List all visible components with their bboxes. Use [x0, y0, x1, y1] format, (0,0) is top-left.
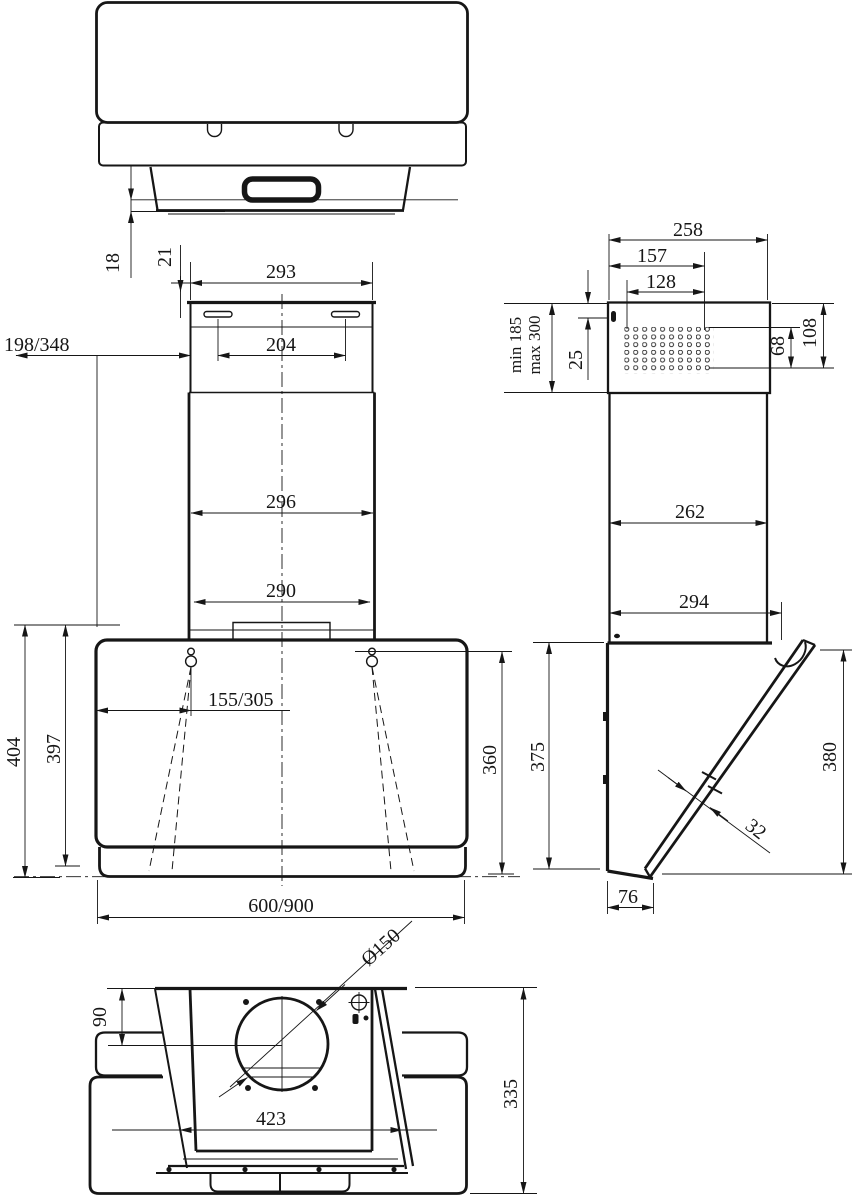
top-view-body-band [99, 123, 466, 166]
hanging-slot [611, 311, 616, 322]
keyhole-left [186, 648, 197, 666]
dim-label-76: 76 [618, 886, 638, 908]
dim-label-155-305: 155/305 [208, 689, 274, 711]
drawing-page: 18 21 [0, 0, 853, 1200]
blower-cover [211, 1174, 350, 1192]
side-view-top-box [608, 303, 770, 394]
dim-label-375: 375 [527, 742, 549, 772]
dim-label-335: 335 [500, 1079, 522, 1109]
dim-label-108: 108 [799, 318, 821, 348]
cable-gland [349, 992, 370, 1024]
mounting-template-dashed-lines [149, 667, 414, 871]
top-view-handle-slot [245, 179, 319, 200]
dim-label-68: 68 [767, 336, 789, 356]
dim-label-404: 404 [3, 737, 25, 767]
dim-label-423: 423 [256, 1108, 286, 1130]
side-view: 258 157 128 min 185 max 300 25 68 108 26… [504, 219, 852, 914]
dim-label-296: 296 [266, 491, 296, 513]
dim-label-262: 262 [675, 501, 705, 523]
top-view-glass-panel [97, 3, 468, 123]
dim-label-204: 204 [266, 334, 296, 356]
dim-label-128: 128 [646, 271, 676, 293]
dim-label-293: 293 [266, 261, 296, 283]
dim-label-157: 157 [637, 245, 667, 267]
top-view-notches [208, 124, 354, 137]
front-view: 293 204 198/348 296 290 404 397 155/305 … [3, 261, 520, 924]
bottom-view: Ø150 90 423 335 [89, 921, 537, 1194]
dim-label-397: 397 [43, 734, 65, 764]
dim-label-min-185: min 185 [506, 317, 525, 373]
dim-label-21: 21 [154, 247, 176, 267]
dim-label-18: 18 [102, 253, 124, 273]
keyhole-right [367, 648, 378, 666]
dim-label-max-300: max 300 [525, 315, 544, 374]
glass-panel [645, 640, 815, 877]
vent-perforations [624, 327, 714, 373]
dim-label-294: 294 [679, 591, 709, 613]
side-view-body [603, 640, 815, 879]
front-view-body [96, 640, 467, 877]
technical-drawing: 18 21 [0, 0, 853, 1200]
bottom-view-dimensions [107, 921, 537, 1194]
dim-label-600-900: 600/900 [248, 895, 314, 917]
dim-label-25: 25 [565, 350, 587, 370]
dim-label-290: 290 [266, 580, 296, 602]
dim-label-360: 360 [479, 745, 501, 775]
dim-label-258: 258 [673, 219, 703, 241]
dim-label-32: 32 [741, 814, 770, 844]
dim-label-380: 380 [819, 742, 841, 772]
dim-label-90: 90 [89, 1007, 111, 1027]
dim-label-dia150: Ø150 [357, 924, 405, 970]
dim-label-198-348: 198/348 [4, 334, 70, 356]
